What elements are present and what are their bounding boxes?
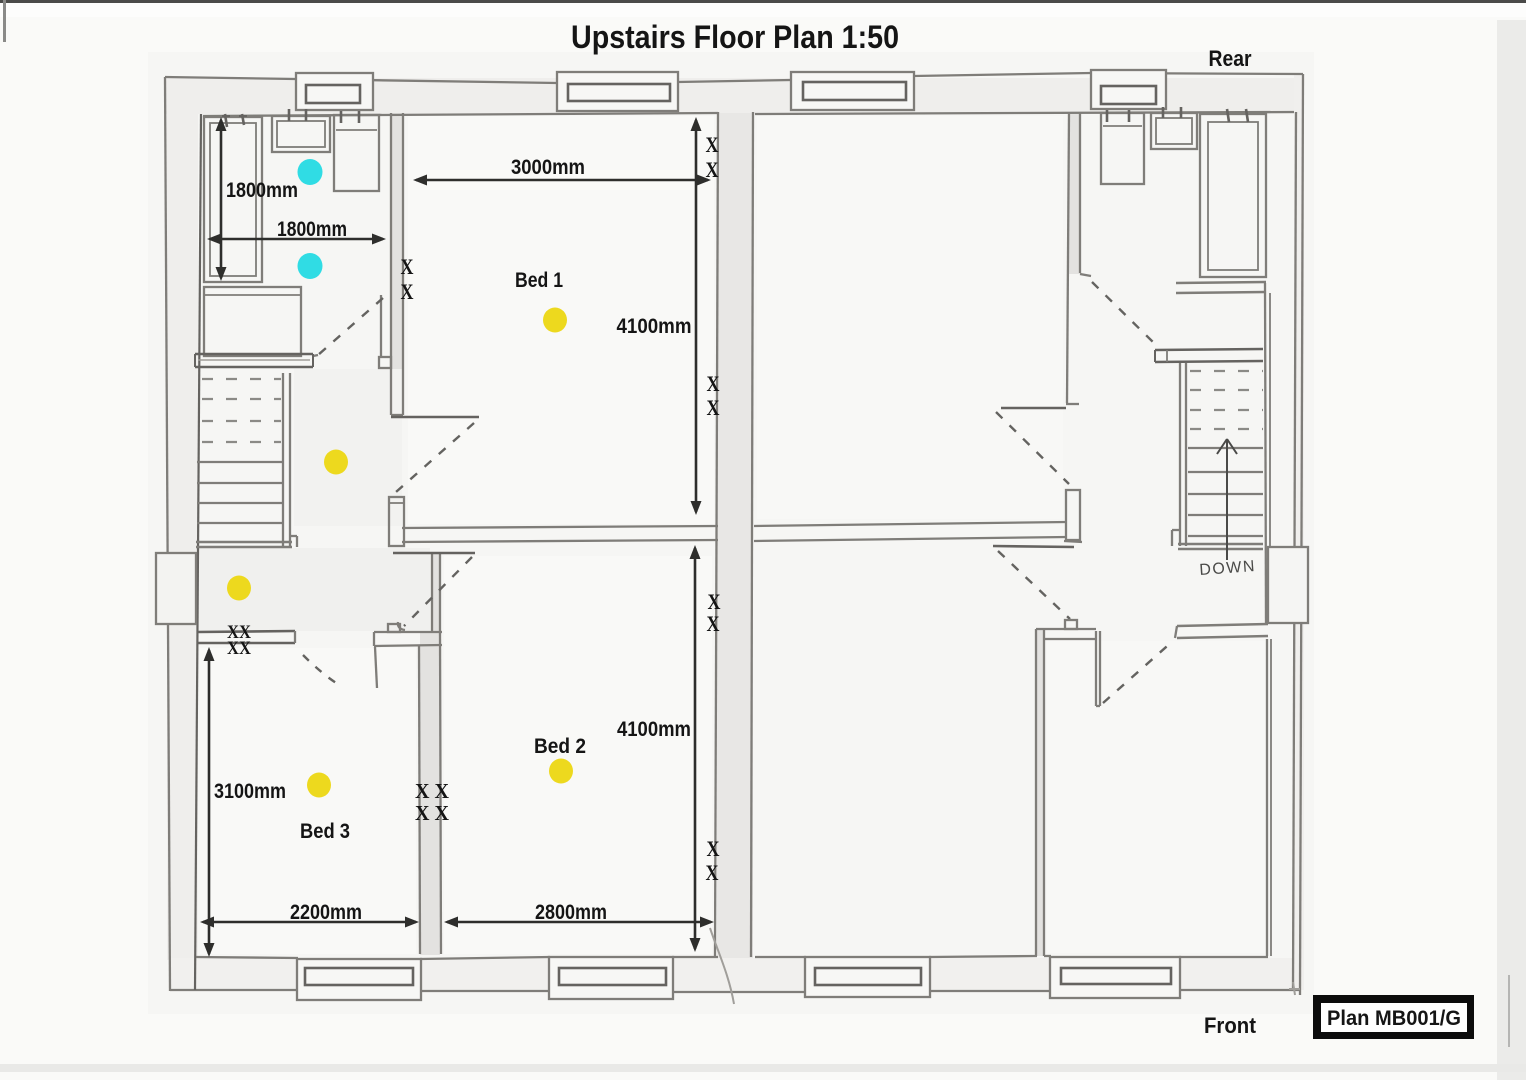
svg-text:X: X: [707, 371, 720, 396]
svg-text:1800mm: 1800mm: [277, 218, 347, 241]
svg-text:Plan MB001/G: Plan MB001/G: [1327, 1007, 1461, 1030]
svg-text:X: X: [706, 157, 719, 182]
svg-text:XX: XX: [227, 638, 251, 659]
svg-text:1800mm: 1800mm: [226, 179, 298, 202]
svg-text:Front: Front: [1204, 1013, 1257, 1038]
svg-text:Bed 3: Bed 3: [300, 820, 350, 843]
svg-text:X: X: [707, 395, 720, 420]
svg-text:X: X: [706, 860, 719, 885]
svg-text:Rear: Rear: [1209, 46, 1252, 71]
svg-text:X: X: [401, 254, 414, 279]
svg-text:X: X: [707, 836, 720, 861]
svg-text:Upstairs Floor Plan 1:50: Upstairs Floor Plan 1:50: [571, 19, 899, 55]
svg-text:2800mm: 2800mm: [535, 901, 607, 924]
svg-text:X: X: [706, 132, 719, 157]
svg-text:Bed 1: Bed 1: [515, 269, 563, 292]
svg-text:4100mm: 4100mm: [617, 315, 692, 338]
svg-text:3000mm: 3000mm: [511, 156, 585, 179]
svg-text:X X: X X: [415, 779, 449, 803]
svg-text:2200mm: 2200mm: [290, 901, 362, 924]
svg-text:X X: X X: [415, 801, 449, 825]
svg-text:X: X: [401, 279, 414, 304]
svg-text:Bed 2: Bed 2: [534, 735, 586, 758]
svg-text:4100mm: 4100mm: [617, 718, 691, 741]
svg-text:3100mm: 3100mm: [214, 780, 286, 803]
svg-text:X: X: [707, 611, 720, 636]
